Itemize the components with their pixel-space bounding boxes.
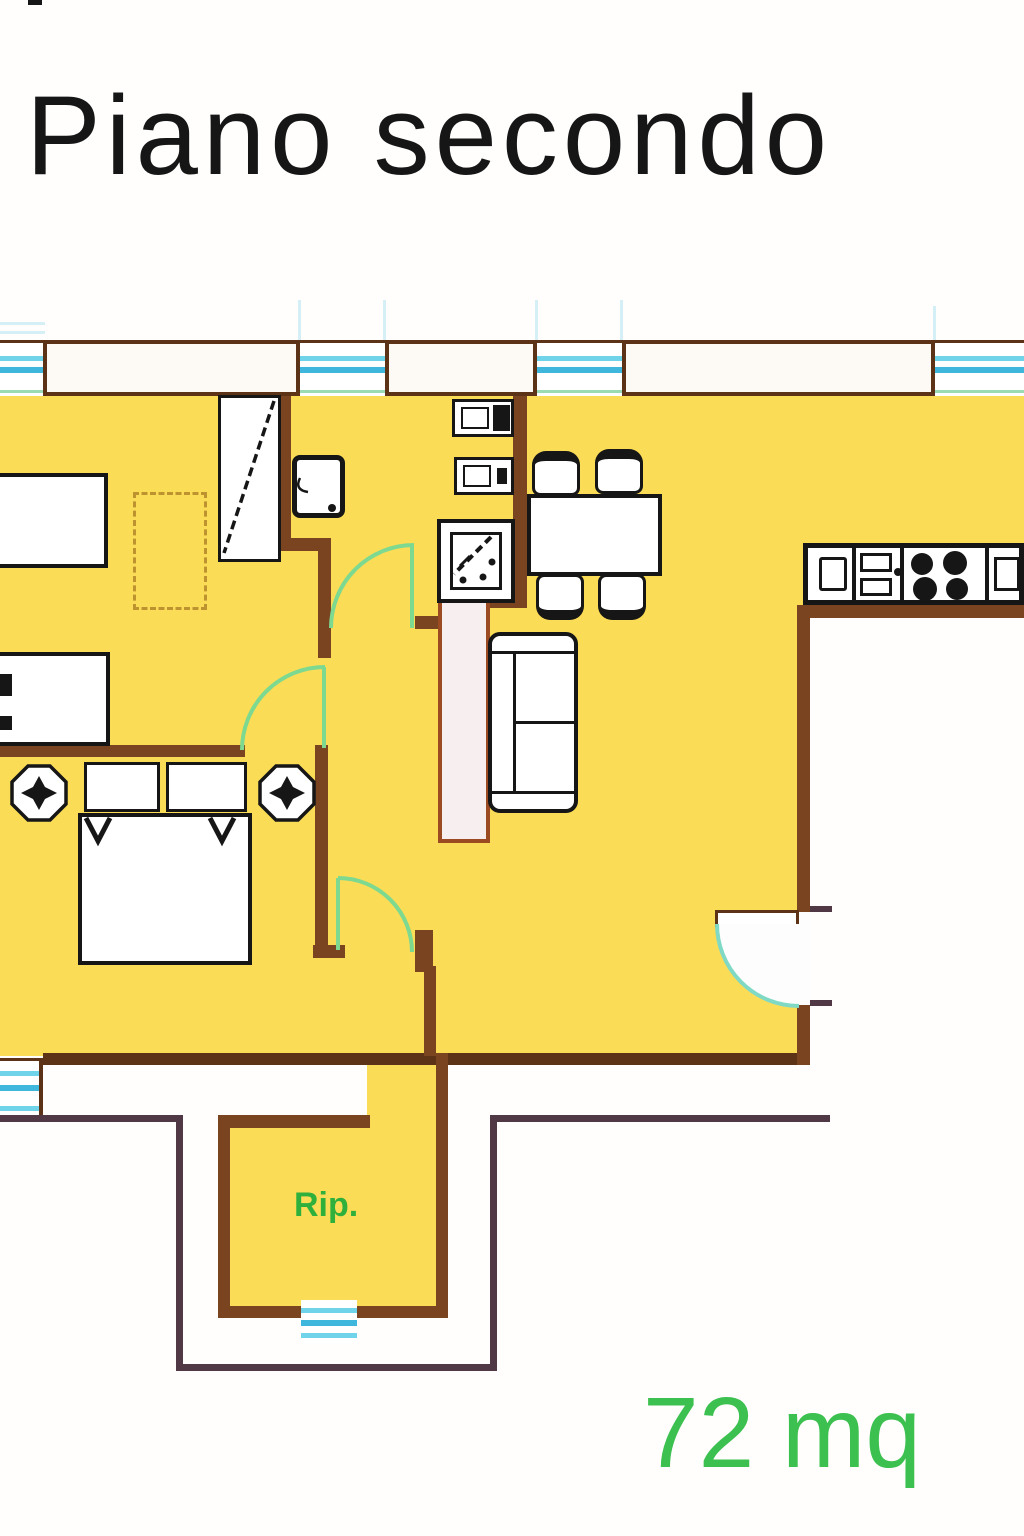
wall-kitchen-bottom xyxy=(797,605,1024,618)
window-top-4 xyxy=(935,340,1024,396)
exterior-wall xyxy=(176,1115,183,1371)
sill-line xyxy=(620,300,623,340)
exterior-wall xyxy=(490,1115,497,1371)
counter-divider xyxy=(985,548,989,600)
wall-bath-left-lower xyxy=(318,546,331,658)
carpet-dashed xyxy=(133,492,207,610)
toilet-bowl xyxy=(461,407,489,429)
door-jamb-line xyxy=(810,1000,832,1006)
kitchen-sink-basin xyxy=(860,578,892,596)
wall-bath-door-stub xyxy=(415,616,440,629)
toilet xyxy=(452,399,514,437)
stove-burner xyxy=(913,577,937,601)
stove-burner xyxy=(911,553,933,575)
storage-wall-right xyxy=(436,1053,448,1318)
sill-line xyxy=(383,300,386,340)
wall-living-left xyxy=(424,966,436,1056)
exterior-wall xyxy=(0,1115,183,1122)
wall-bedroom2-right xyxy=(315,745,328,958)
kitchen-cabinet xyxy=(994,557,1020,591)
wall-bedroom2-stub xyxy=(313,945,345,958)
bathroom-sink xyxy=(292,455,345,518)
wall-bath-right xyxy=(513,396,527,608)
wall-pier-1 xyxy=(43,340,300,396)
kitchen-faucet xyxy=(894,568,902,576)
counter-divider xyxy=(852,548,856,600)
shower-tray xyxy=(450,532,502,590)
window-top-3 xyxy=(537,340,622,396)
storage-wall-left xyxy=(218,1115,230,1318)
exterior-wall xyxy=(176,1364,497,1371)
bed-detail-mark xyxy=(0,674,12,696)
double-bed xyxy=(78,813,252,965)
floor-plan-page: Piano secondo xyxy=(0,0,1024,1536)
wardrobe xyxy=(218,395,281,562)
storage-wall-bottom-left xyxy=(218,1306,305,1318)
sill-line xyxy=(0,322,45,325)
sill-line xyxy=(933,306,936,340)
kitchen-cabinet xyxy=(819,557,847,591)
storage-wall-bottom-right xyxy=(355,1306,448,1318)
sofa xyxy=(488,632,578,813)
wall-bedrooms-divider xyxy=(0,745,245,757)
shower-box xyxy=(437,519,515,603)
wall-right-upper xyxy=(797,605,810,912)
door-jamb-line xyxy=(810,906,832,912)
bidet-tap xyxy=(497,468,507,484)
single-bed-2 xyxy=(0,652,110,746)
single-bed-1 xyxy=(0,473,108,568)
sofa-armrest-line xyxy=(492,791,574,794)
window-top-2 xyxy=(300,340,385,396)
exterior-wall xyxy=(490,1115,830,1122)
page-title: Piano secondo xyxy=(26,80,832,192)
bed-detail-mark xyxy=(0,716,12,730)
area-label: 72 mq xyxy=(643,1376,921,1491)
storage-room-label: Rip. xyxy=(294,1186,358,1225)
window-storage xyxy=(301,1300,357,1344)
storage-wall-top xyxy=(218,1115,370,1128)
dining-chair xyxy=(532,451,580,496)
wall-pier-3 xyxy=(622,340,935,396)
sill-line xyxy=(0,331,45,334)
window-top-1 xyxy=(0,340,43,396)
toilet-cistern xyxy=(493,405,510,431)
bidet-bowl xyxy=(463,465,491,487)
stove-burner xyxy=(946,578,968,600)
kitchen-counter xyxy=(803,543,1024,605)
kitchen-sink-basin xyxy=(860,553,892,572)
pillow xyxy=(166,762,247,812)
bidet xyxy=(454,457,514,495)
window-bottom-left xyxy=(0,1058,43,1116)
pillow xyxy=(84,762,160,812)
dining-chair xyxy=(595,449,643,494)
dining-table xyxy=(527,494,662,576)
sofa-seat-divider xyxy=(516,721,574,724)
scan-speck xyxy=(28,0,42,5)
wall-hall-divider xyxy=(438,598,490,843)
dining-chair xyxy=(598,574,646,620)
sill-line xyxy=(535,300,538,340)
wall-right-lower xyxy=(797,1005,810,1065)
sofa-armrest-line xyxy=(492,651,574,654)
dining-chair xyxy=(536,574,584,620)
wall-pier-2 xyxy=(385,340,537,396)
sill-line xyxy=(298,300,301,340)
stove-burner xyxy=(943,551,967,575)
entrance-door-leaf xyxy=(715,910,799,927)
